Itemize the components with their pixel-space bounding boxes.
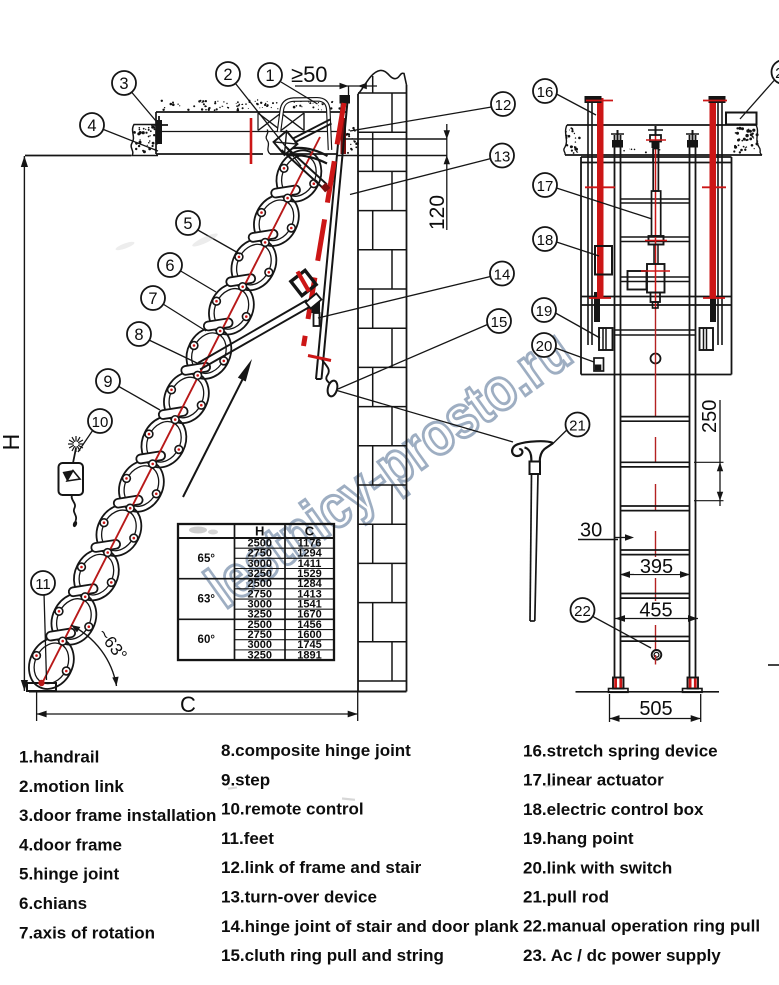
svg-text:12.link of frame and stair: 12.link of frame and stair — [221, 858, 422, 877]
svg-text:16: 16 — [537, 84, 554, 101]
svg-text:19: 19 — [536, 303, 553, 320]
svg-text:2: 2 — [223, 66, 232, 84]
svg-text:≥50: ≥50 — [291, 62, 328, 87]
svg-text:6.chians: 6.chians — [19, 894, 87, 913]
svg-text:21: 21 — [569, 417, 586, 434]
svg-text:17.linear actuator: 17.linear actuator — [523, 771, 664, 790]
svg-text:15: 15 — [491, 314, 508, 331]
svg-text:22.manual operation ring pull: 22.manual operation ring pull — [523, 917, 760, 936]
svg-text:H: H — [0, 434, 24, 451]
svg-text:395: 395 — [640, 556, 673, 578]
svg-text:3250: 3250 — [248, 649, 272, 661]
svg-text:10: 10 — [92, 414, 109, 431]
svg-text:13: 13 — [494, 148, 511, 165]
svg-text:455: 455 — [639, 600, 672, 622]
svg-text:5: 5 — [183, 215, 192, 233]
svg-text:17: 17 — [537, 178, 554, 195]
svg-text:13.turn-over device: 13.turn-over device — [221, 888, 377, 907]
svg-text:20: 20 — [536, 338, 553, 355]
svg-text:4.door frame: 4.door frame — [19, 835, 122, 854]
svg-text:23: 23 — [775, 65, 779, 82]
svg-text:2.motion link: 2.motion link — [19, 777, 124, 796]
svg-text:H: H — [255, 524, 264, 539]
svg-text:C: C — [305, 524, 315, 539]
svg-text:3: 3 — [119, 75, 128, 93]
svg-text:16.stretch spring device: 16.stretch spring device — [523, 742, 718, 761]
svg-text:120: 120 — [426, 195, 449, 230]
svg-text:20.link with switch: 20.link with switch — [523, 858, 672, 877]
svg-text:505: 505 — [639, 698, 672, 720]
svg-text:14.hinge joint of stair and do: 14.hinge joint of stair and door plank — [221, 917, 519, 936]
svg-text:1891: 1891 — [297, 649, 321, 661]
svg-text:18: 18 — [537, 232, 554, 249]
svg-text:7.axis of rotation: 7.axis of rotation — [19, 923, 155, 942]
svg-text:11: 11 — [35, 576, 51, 593]
svg-text:14: 14 — [494, 266, 511, 283]
svg-text:30: 30 — [580, 520, 602, 542]
svg-text:10.remote control: 10.remote control — [221, 800, 364, 819]
svg-text:C: C — [180, 692, 196, 717]
svg-text:4: 4 — [87, 117, 96, 135]
svg-text:6: 6 — [165, 257, 174, 275]
svg-text:3.door frame installation: 3.door frame installation — [19, 806, 216, 825]
svg-text:1: 1 — [265, 67, 274, 85]
svg-text:8: 8 — [134, 326, 143, 344]
svg-text:250: 250 — [699, 400, 721, 433]
svg-text:21.pull rod: 21.pull rod — [523, 888, 609, 907]
svg-text:18.electric control box: 18.electric control box — [523, 800, 704, 819]
svg-text:5.hinge joint: 5.hinge joint — [19, 865, 119, 884]
svg-text:15.cluth ring pull and string: 15.cluth ring pull and string — [221, 946, 444, 965]
svg-text:23. Ac / dc power supply: 23. Ac / dc power supply — [523, 946, 721, 965]
svg-text:19.hang point: 19.hang point — [523, 829, 634, 848]
svg-text:1.handrail: 1.handrail — [19, 748, 99, 767]
svg-text:12: 12 — [495, 97, 512, 114]
svg-text:11.feet: 11.feet — [221, 829, 274, 848]
svg-text:8.composite hinge joint: 8.composite hinge joint — [221, 741, 411, 760]
svg-text:9.step: 9.step — [221, 770, 270, 789]
svg-text:22: 22 — [574, 603, 591, 620]
svg-text:65°: 65° — [198, 553, 216, 565]
svg-text:63°: 63° — [198, 594, 216, 606]
svg-text:7: 7 — [148, 290, 157, 308]
svg-text:9: 9 — [103, 373, 112, 391]
svg-text:60°: 60° — [198, 634, 216, 646]
